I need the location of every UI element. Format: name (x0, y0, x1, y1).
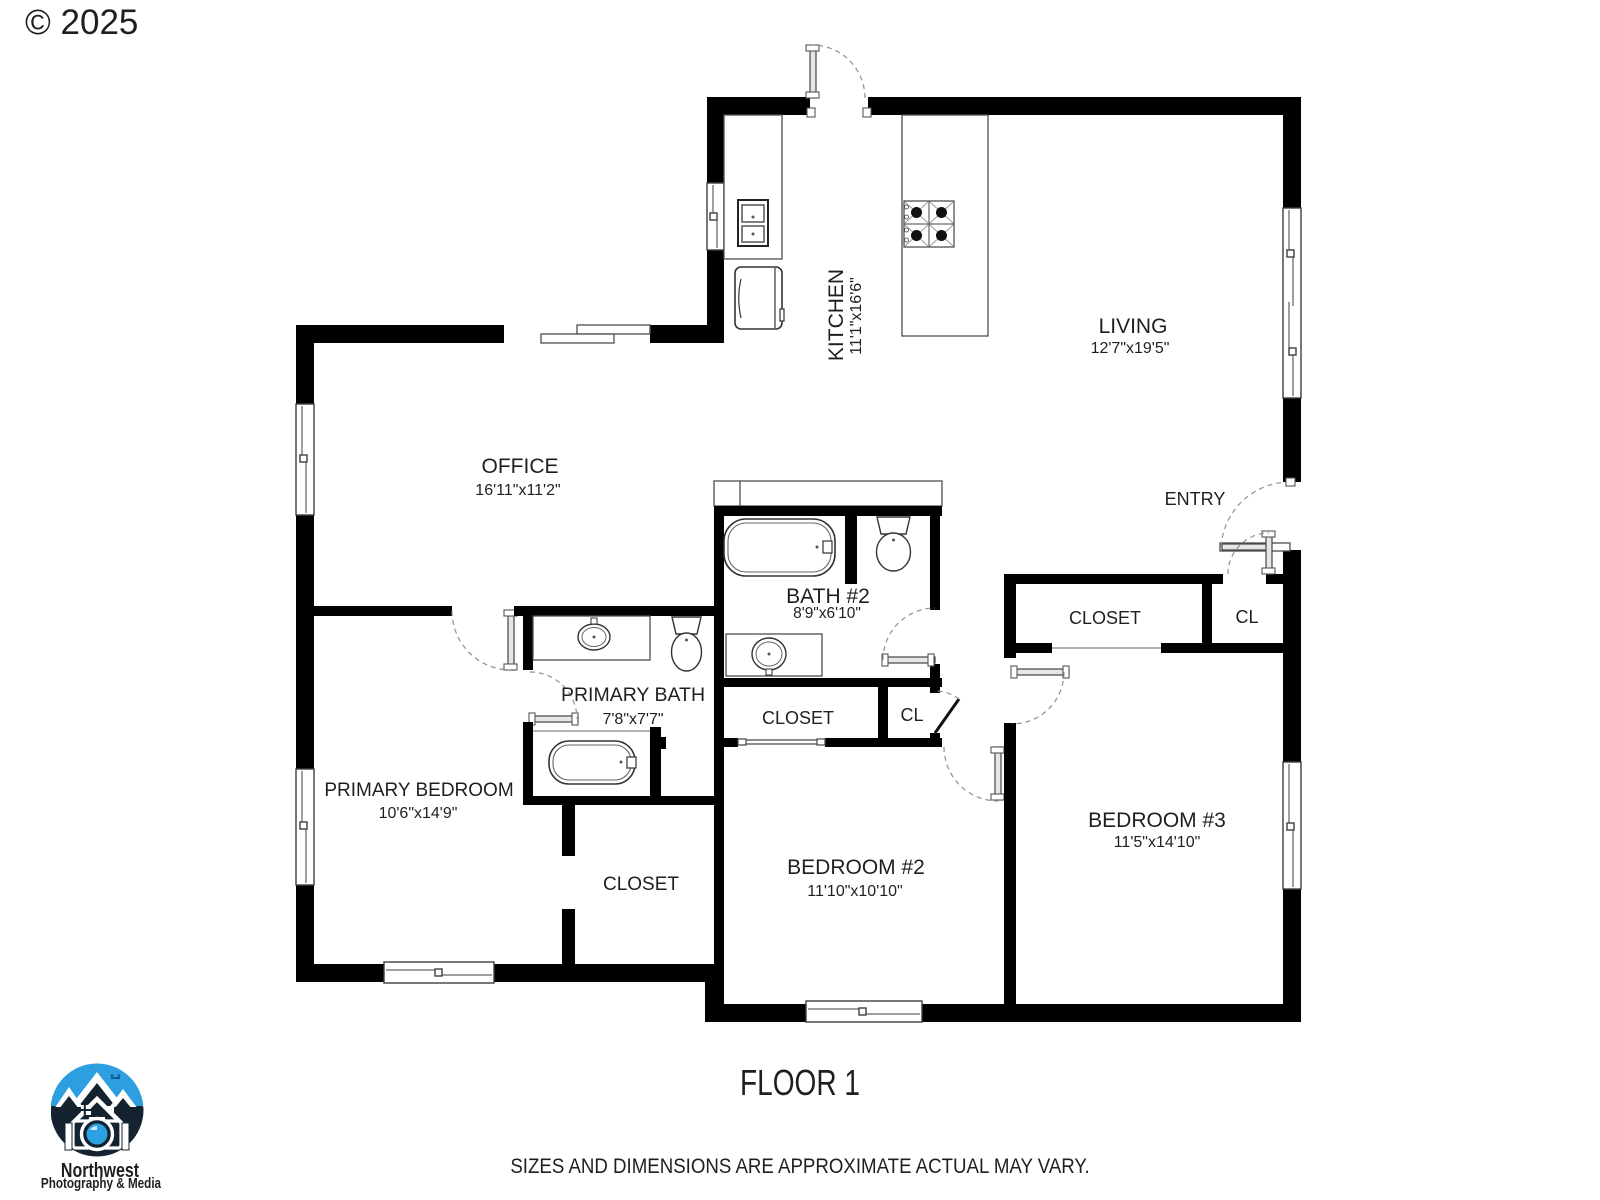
svg-text:11'10"x10'10": 11'10"x10'10" (807, 883, 902, 900)
svg-text:SIZES AND DIMENSIONS ARE APPRO: SIZES AND DIMENSIONS ARE APPROXIMATE ACT… (510, 1155, 1089, 1178)
svg-text:CLOSET: CLOSET (762, 708, 834, 728)
svg-text:10'6"x14'9": 10'6"x14'9" (379, 805, 458, 822)
svg-text:CLOSET: CLOSET (603, 874, 679, 895)
svg-text:OFFICE: OFFICE (482, 455, 559, 478)
svg-text:LIVING: LIVING (1099, 315, 1168, 338)
svg-text:CLOSET: CLOSET (1069, 608, 1141, 628)
svg-text:12'7"x19'5": 12'7"x19'5" (1091, 340, 1170, 357)
svg-text:© 2025: © 2025 (25, 3, 138, 42)
svg-text:7'8"x7'7": 7'8"x7'7" (602, 711, 663, 728)
svg-text:BEDROOM #2: BEDROOM #2 (787, 856, 925, 879)
svg-text:FLOOR 1: FLOOR 1 (740, 1063, 860, 1103)
svg-text:CL: CL (1235, 607, 1258, 627)
svg-text:11'5"x14'10": 11'5"x14'10" (1114, 834, 1201, 851)
svg-text:BEDROOM #3: BEDROOM #3 (1088, 809, 1226, 832)
svg-text:CL: CL (900, 705, 923, 725)
svg-text:KITCHEN: KITCHEN (825, 269, 848, 361)
svg-text:16'11"x11'2": 16'11"x11'2" (475, 482, 560, 499)
svg-text:ENTRY: ENTRY (1165, 489, 1226, 509)
svg-text:PRIMARY BEDROOM: PRIMARY BEDROOM (324, 780, 513, 801)
svg-text:PRIMARY BATH: PRIMARY BATH (561, 684, 705, 706)
svg-text:11'1"x16'6": 11'1"x16'6" (848, 277, 865, 355)
svg-text:8'9"x6'10": 8'9"x6'10" (793, 605, 861, 622)
svg-text:Photography & Media: Photography & Media (41, 1175, 162, 1192)
